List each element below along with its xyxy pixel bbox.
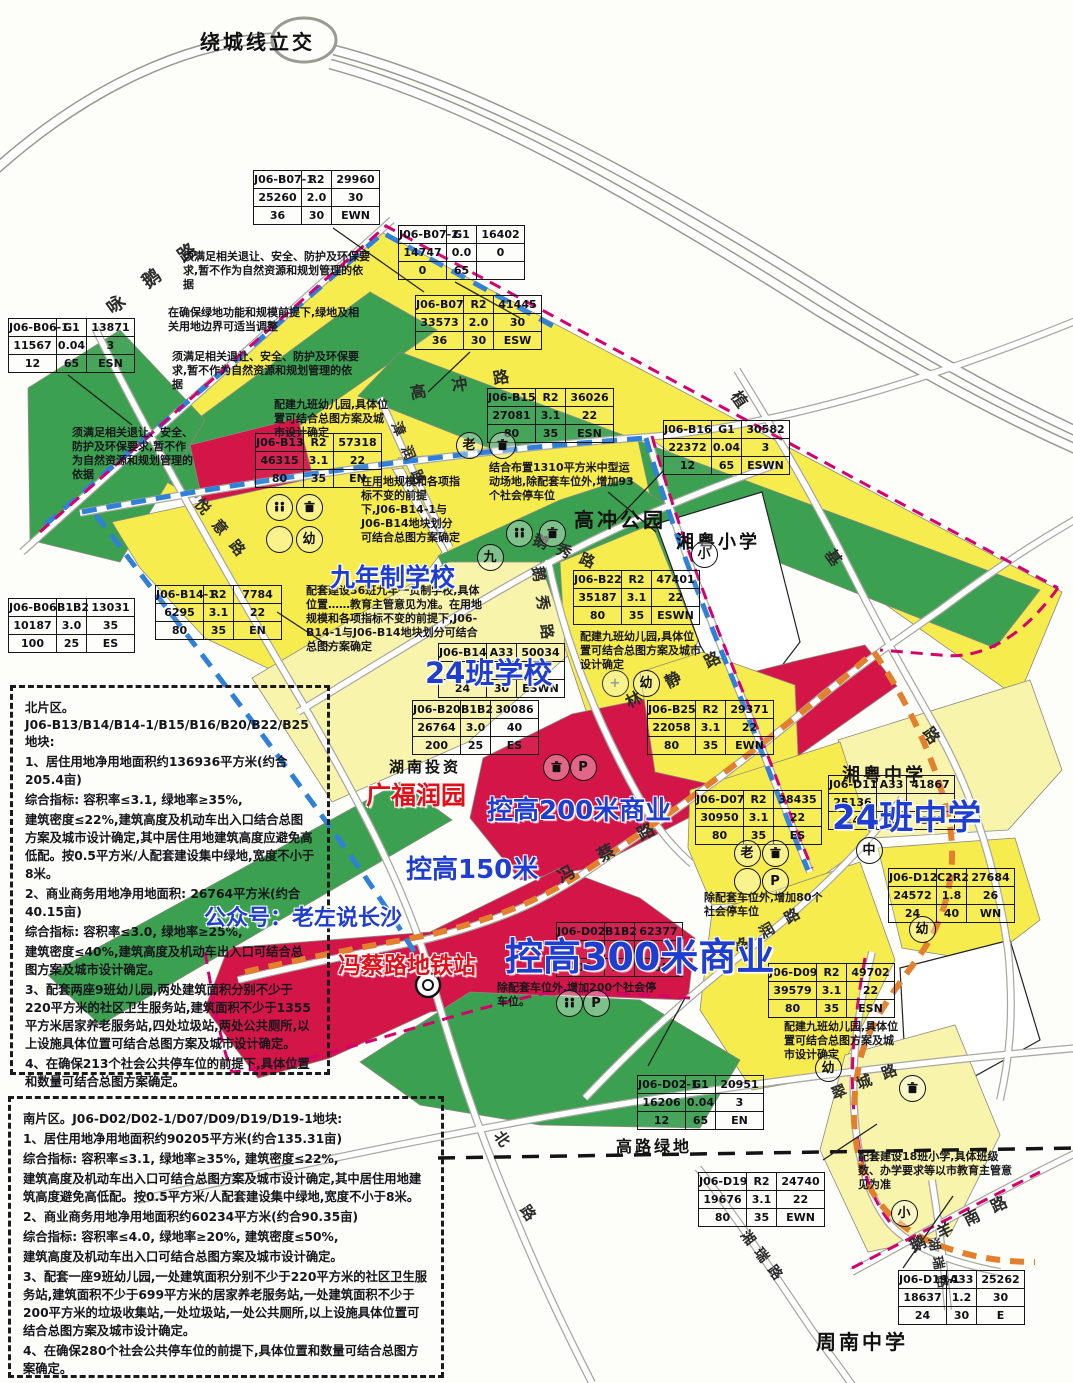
table-cell: 57318 bbox=[333, 433, 382, 452]
annotation-blue-label: 控高300米商业 bbox=[505, 926, 774, 981]
table-cell: 22 bbox=[651, 588, 700, 607]
table-cell: J06-B25 bbox=[647, 700, 696, 719]
table-cell: R2 bbox=[746, 1172, 777, 1191]
table-cell: 3.1 bbox=[816, 981, 847, 1000]
table-cell: 35 bbox=[816, 999, 847, 1018]
table-cell: 16206 bbox=[637, 1093, 686, 1112]
area-label: 湘粤小学 bbox=[676, 528, 760, 554]
facility-icon-中: 中 bbox=[856, 837, 883, 864]
table-cell: J06-D19-1 bbox=[898, 1270, 947, 1289]
table-cell: 0.04 bbox=[711, 438, 742, 457]
table-cell: J06-D12 bbox=[888, 868, 937, 887]
table-cell: 30 bbox=[493, 313, 542, 332]
parcel-table-J06-D19: J06-D19R224740196763.1228035EWN bbox=[698, 1172, 824, 1226]
table-cell: J06-B20 bbox=[412, 700, 461, 719]
table-cell: 27081 bbox=[487, 406, 536, 425]
parcel-table-J06-B06-1: J06-B06-1G113871115670.0431265ESN bbox=[8, 318, 134, 372]
table-cell: 3.1 bbox=[746, 1190, 777, 1209]
table-cell: 3.1 bbox=[203, 603, 234, 622]
table-cell: 22372 bbox=[663, 438, 712, 457]
table-cell: R2 bbox=[301, 170, 332, 189]
zone-note-paragraph: 建筑密度≤22%,建筑高度及机动车出入口结合总图方案及城市设计确定,其中居住用地… bbox=[25, 810, 315, 882]
table-cell: J06-B16 bbox=[663, 420, 712, 439]
table-cell: 80 bbox=[573, 606, 622, 625]
table-cell: 12 bbox=[637, 1111, 686, 1130]
table-cell: 25 bbox=[56, 634, 87, 653]
table-cell bbox=[476, 261, 525, 280]
annotation-blue-label: 24班中学 bbox=[832, 790, 981, 839]
table-cell: 100 bbox=[8, 634, 57, 653]
table-cell: R2 bbox=[463, 295, 494, 314]
trash-station-icon bbox=[539, 520, 566, 547]
facility-icon-幼: 幼 bbox=[296, 526, 323, 553]
table-cell: 1.2 bbox=[946, 1288, 977, 1307]
parcel-table-J06-D07: J06-D07R238435309503.1228035ES bbox=[695, 790, 821, 844]
table-cell: 47401 bbox=[651, 570, 700, 589]
parcel-table-J06-B07: J06-B07R241445335732.0303630ESW bbox=[415, 295, 541, 349]
trash-station-icon bbox=[762, 840, 789, 867]
zone-note-paragraph: 4、在确保213个社会公共停车位的前提下,具体位置和数量可结合总图方案确定。 bbox=[25, 1054, 315, 1090]
table-cell: 35 bbox=[621, 606, 652, 625]
table-cell: 200 bbox=[412, 736, 461, 755]
table-cell: 65 bbox=[685, 1111, 716, 1130]
facility-icon-老: 老 bbox=[734, 840, 761, 867]
planning-note: 配建九班幼儿园,具体位置可结合总图方案及城市设计确定 bbox=[784, 1020, 902, 1062]
table-cell: EWN bbox=[776, 1208, 825, 1227]
table-cell: 12 bbox=[663, 456, 712, 475]
table-cell: 6295 bbox=[155, 603, 204, 622]
table-cell: 30 bbox=[331, 188, 380, 207]
table-cell: ESW bbox=[493, 331, 542, 350]
table-cell: 36 bbox=[415, 331, 464, 350]
facility-icon-老: 老 bbox=[456, 432, 483, 459]
table-cell: J06-B07 bbox=[415, 295, 464, 314]
planning-note: 须满足相关退让、安全、防护及环保要求,暂不作为自然资源和规划管理的依据 bbox=[172, 350, 360, 392]
table-cell: 0 bbox=[398, 261, 447, 280]
zone-note-paragraph: 北片区。 bbox=[25, 698, 315, 716]
table-cell: 24740 bbox=[776, 1172, 825, 1191]
parcel-table-J06-D09: J06-D09R249702395793.1228035ESN bbox=[768, 963, 894, 1017]
facility-circle-icon bbox=[266, 526, 293, 553]
table-cell: 24 bbox=[898, 1306, 947, 1325]
table-cell: J06-D07 bbox=[695, 790, 744, 809]
table-cell: R2 bbox=[203, 585, 234, 604]
zone-note-paragraph: 综合指标: 容积率≤3.1, 绿地率≥35%, bbox=[25, 790, 315, 808]
table-cell: A33 bbox=[946, 1270, 977, 1289]
facility-icon-幼: 幼 bbox=[815, 1055, 842, 1082]
zone-note-paragraph: 建筑高度及机动车出入口可结合总图方案及城市设计确定,其中居住用地建筑高度避免高低… bbox=[23, 1169, 429, 1205]
table-cell: J06-B07-2 bbox=[398, 225, 447, 244]
table-cell: ESWN bbox=[651, 606, 700, 625]
table-cell: J06-D09 bbox=[768, 963, 817, 982]
table-cell: 80 bbox=[255, 469, 304, 488]
table-cell: R2 bbox=[695, 700, 726, 719]
area-label: 高冲公园 bbox=[574, 504, 666, 533]
table-cell: J06-D19 bbox=[698, 1172, 747, 1191]
zone-note-paragraph: 3、配套两座9班幼儿园,两处建筑面积分别不少于220平方米的社区卫生服务站,建筑… bbox=[25, 980, 315, 1052]
table-cell: 26764 bbox=[412, 718, 461, 737]
table-cell: ESN bbox=[846, 999, 895, 1018]
table-cell: G1 bbox=[685, 1075, 716, 1094]
table-cell: 80 bbox=[768, 999, 817, 1018]
table-cell: ESN bbox=[86, 354, 135, 373]
table-cell: E bbox=[976, 1306, 1025, 1325]
table-cell: 80 bbox=[698, 1208, 747, 1227]
zone-note-paragraph: 建筑密度≤40%,建筑高度及机动车出入口可结合总图方案及城市设计确定。 bbox=[25, 942, 315, 978]
table-cell: 35 bbox=[535, 424, 566, 443]
table-cell: 39579 bbox=[768, 981, 817, 1000]
table-cell: 25 bbox=[460, 736, 491, 755]
trash-station-icon bbox=[489, 432, 516, 459]
table-cell: 3.0 bbox=[56, 616, 87, 635]
table-cell: 25260 bbox=[253, 188, 302, 207]
table-cell: G1 bbox=[56, 318, 87, 337]
trash-station-icon bbox=[296, 494, 323, 521]
table-cell: 2.0 bbox=[301, 188, 332, 207]
table-cell: B1B2 bbox=[460, 700, 491, 719]
annotation-blue-label: 公众号：老左说长沙 bbox=[204, 900, 402, 932]
table-cell: 29371 bbox=[725, 700, 774, 719]
table-cell: 22 bbox=[725, 718, 774, 737]
north-zone-notes: 北片区。J06-B13/B14/B14-1/B15/B16/B20/B22/B2… bbox=[10, 685, 330, 1075]
table-cell: 38435 bbox=[773, 790, 822, 809]
toilet-icon bbox=[506, 520, 533, 547]
table-cell: 2.0 bbox=[463, 313, 494, 332]
table-cell: 12 bbox=[8, 354, 57, 373]
table-cell: EWN bbox=[725, 736, 774, 755]
table-cell: 30 bbox=[976, 1288, 1025, 1307]
area-label: 周南中学 bbox=[816, 1326, 908, 1355]
table-cell: 11567 bbox=[8, 336, 57, 355]
parking-icon: P bbox=[583, 990, 610, 1017]
zone-note-paragraph: J06-B13/B14/B14-1/B15/B16/B20/B22/B25地块: bbox=[25, 718, 315, 750]
table-cell: 30582 bbox=[741, 420, 790, 439]
parcel-table-J06-B16: J06-B16G130582223720.0431265ESWN bbox=[663, 420, 789, 474]
facility-circle-icon bbox=[734, 868, 761, 895]
parcel-table-J06-B13: J06-B13R257318463153.1228035EN bbox=[255, 433, 381, 487]
table-cell: 18637 bbox=[898, 1288, 947, 1307]
table-cell: 22 bbox=[233, 603, 282, 622]
table-cell: 3.1 bbox=[621, 588, 652, 607]
annotation-blue-label: 九年制学校 bbox=[330, 558, 455, 594]
table-cell: 80 bbox=[695, 826, 744, 845]
zone-note-paragraph: 1、居住用地净用地面积约90205平方米(约合135.31亩) bbox=[23, 1129, 429, 1147]
annotation-blue-label: 控高150米 bbox=[406, 849, 538, 886]
table-cell: C2R2 bbox=[936, 868, 967, 887]
table-cell: B1B2 bbox=[56, 598, 87, 617]
table-cell: WN bbox=[966, 904, 1015, 923]
table-cell: G1 bbox=[446, 225, 477, 244]
table-cell: 36026 bbox=[565, 388, 614, 407]
annotation-red-label: 冯蔡路地铁站 bbox=[338, 946, 476, 980]
table-cell: 35 bbox=[203, 621, 234, 640]
table-cell: R2 bbox=[621, 570, 652, 589]
parcel-table-J06-B14-1: J06-B14-1R2778462953.1228035EN bbox=[155, 585, 281, 639]
parcel-table-J06-D02-1: J06-D02-1G120951162060.0431265EN bbox=[637, 1075, 763, 1129]
table-cell: 49702 bbox=[846, 963, 895, 982]
table-cell: 36 bbox=[253, 206, 302, 225]
table-cell: 0.04 bbox=[685, 1093, 716, 1112]
facility-icon-九: 九 bbox=[477, 544, 504, 571]
table-cell: 3 bbox=[86, 336, 135, 355]
table-cell: 65 bbox=[711, 456, 742, 475]
parcel-table-J06-D12: J06-D12C2R227684245721.8262440WN bbox=[888, 868, 1014, 922]
table-cell: EN bbox=[333, 469, 382, 488]
table-cell: 7784 bbox=[233, 585, 282, 604]
table-cell: 27684 bbox=[966, 868, 1015, 887]
zone-note-paragraph: 2、商业商务用地净用地面积约60234平方米(约合90.35亩) bbox=[23, 1207, 429, 1225]
table-cell: 3.0 bbox=[460, 718, 491, 737]
parcel-table-J06-D19-1: J06-D19-1A3325262186371.2302430E bbox=[898, 1270, 1024, 1324]
table-cell: 35187 bbox=[573, 588, 622, 607]
table-cell: 26 bbox=[966, 886, 1015, 905]
area-label: 绕城线立交 bbox=[200, 26, 315, 55]
planning-note: 除配套车位外,增加80个社会停车位 bbox=[704, 891, 830, 919]
table-cell: 20951 bbox=[715, 1075, 764, 1094]
trash-station-icon bbox=[543, 754, 570, 781]
zone-note-paragraph: 建筑高度及机动车出入口可结合总图方案及城市设计确定。 bbox=[23, 1247, 429, 1265]
table-cell: 0.04 bbox=[56, 336, 87, 355]
annotation-blue-label: 控高200米商业 bbox=[487, 790, 671, 827]
south-zone-notes: 南片区。J06-D02/D02-1/D07/D09/D19/D19-1地块:1、… bbox=[8, 1096, 444, 1378]
parcel-table-J06-B07-2: J06-B07-2G116402147470.00065 bbox=[398, 225, 524, 279]
annotation-blue-label: 24班学校 bbox=[425, 650, 552, 692]
table-cell: 24572 bbox=[888, 886, 937, 905]
table-cell: 35 bbox=[86, 616, 135, 635]
zone-note-paragraph: 综合指标: 容积率≤3.1, 绿地率≥35%, 建筑密度≤22%, bbox=[23, 1149, 429, 1167]
table-cell: 22058 bbox=[647, 718, 696, 737]
table-cell: J06-B07-1 bbox=[253, 170, 302, 189]
table-cell: J06-B22 bbox=[573, 570, 622, 589]
table-cell: 13871 bbox=[86, 318, 135, 337]
planning-note: 须满足相关退让、安全、防护及环保要求,暂不作为自然资源和规划管理的依据 bbox=[183, 250, 373, 292]
table-cell: 65 bbox=[446, 261, 477, 280]
table-cell: J06-D02-1 bbox=[637, 1075, 686, 1094]
table-cell: 30950 bbox=[695, 808, 744, 827]
table-cell: EWN bbox=[331, 206, 380, 225]
zone-note-paragraph: 南片区。J06-D02/D02-1/D07/D09/D19/D19-1地块: bbox=[23, 1109, 429, 1127]
table-cell: 22 bbox=[333, 451, 382, 470]
table-cell: 40 bbox=[936, 904, 967, 923]
table-cell: R2 bbox=[816, 963, 847, 982]
parcel-table-J06-B25: J06-B25R229371220583.1228035EWN bbox=[647, 700, 773, 754]
table-cell: ESN bbox=[565, 424, 614, 443]
toilet-icon bbox=[266, 494, 293, 521]
facility-icon-小: 小 bbox=[691, 541, 718, 568]
trash-station-icon bbox=[899, 1075, 926, 1102]
table-cell: 29960 bbox=[331, 170, 380, 189]
parking-icon: P bbox=[762, 868, 789, 895]
table-cell: 30 bbox=[463, 331, 494, 350]
toilet-icon bbox=[556, 990, 583, 1017]
table-cell: J06-B13 bbox=[255, 433, 304, 452]
table-cell: 80 bbox=[155, 621, 204, 640]
table-cell: 80 bbox=[647, 736, 696, 755]
facility-icon-幼: 幼 bbox=[909, 916, 936, 943]
table-cell: 1.8 bbox=[936, 886, 967, 905]
table-cell: 46315 bbox=[255, 451, 304, 470]
table-cell: R2 bbox=[535, 388, 566, 407]
table-cell: 0.0 bbox=[446, 243, 477, 262]
table-cell: ESWN bbox=[741, 456, 790, 475]
table-cell: 30086 bbox=[490, 700, 539, 719]
facility-icon-幼: 幼 bbox=[633, 670, 660, 697]
table-cell: 35 bbox=[746, 1208, 777, 1227]
table-cell: 3.1 bbox=[303, 451, 334, 470]
table-cell: 13031 bbox=[86, 598, 135, 617]
parking-icon: P bbox=[570, 754, 597, 781]
planning-note: 配建九班幼儿园,具体位置可结合总图方案及城市设计确定 bbox=[580, 630, 702, 672]
table-cell: ES bbox=[490, 736, 539, 755]
table-cell: 22 bbox=[565, 406, 614, 425]
table-cell: J06-B06 bbox=[8, 598, 57, 617]
table-cell: 22 bbox=[846, 981, 895, 1000]
table-cell: 65 bbox=[56, 354, 87, 373]
table-cell: 16402 bbox=[476, 225, 525, 244]
parcel-table-J06-B22: J06-B22R247401351873.1228035ESWN bbox=[573, 570, 699, 624]
planning-note: 须满足相关退让、安全、防护及环保要求,暂不作为自然资源和规划管理的依据 bbox=[72, 426, 194, 482]
table-cell: 3 bbox=[715, 1093, 764, 1112]
table-cell: 41445 bbox=[493, 295, 542, 314]
table-cell: G1 bbox=[711, 420, 742, 439]
table-cell: 30 bbox=[301, 206, 332, 225]
table-cell: 3.1 bbox=[743, 808, 774, 827]
planning-map: 北片区。J06-B13/B14/B14-1/B15/B16/B20/B22/B2… bbox=[0, 0, 1073, 1383]
table-cell: EN bbox=[715, 1111, 764, 1130]
planning-note: 结合布置1310平方米中型运动场地,除配套车位外,增加93个社会停车位 bbox=[489, 461, 639, 503]
table-cell: 40 bbox=[490, 718, 539, 737]
planning-note: 配套建设18班小学,具体班级数、办学要求等以市教育主管意见为准 bbox=[858, 1150, 1018, 1192]
table-cell: 35 bbox=[303, 469, 334, 488]
table-cell: ES bbox=[86, 634, 135, 653]
area-label: 高路绿地 bbox=[616, 1133, 692, 1157]
parcel-table-J06-B20: J06-B20B1B230086267643.04020025ES bbox=[412, 700, 538, 754]
table-cell: 3.1 bbox=[695, 718, 726, 737]
table-cell: 33573 bbox=[415, 313, 464, 332]
table-cell: 19676 bbox=[698, 1190, 747, 1209]
table-cell: 22 bbox=[776, 1190, 825, 1209]
table-cell: 3 bbox=[741, 438, 790, 457]
clinic-icon: + bbox=[602, 670, 629, 697]
table-cell: 25262 bbox=[976, 1270, 1025, 1289]
table-cell: 3.1 bbox=[535, 406, 566, 425]
facility-icon-小: 小 bbox=[891, 1200, 918, 1227]
table-cell: 14747 bbox=[398, 243, 447, 262]
table-cell: J06-B14-1 bbox=[155, 585, 204, 604]
zone-note-paragraph: 4、在确保280个社会公共停车位的前提下,具体位置和数量可结合总图方案确定。 bbox=[23, 1341, 429, 1377]
table-cell: R2 bbox=[303, 433, 334, 452]
annotation-red-label: 广福润园 bbox=[366, 776, 466, 812]
table-cell: EN bbox=[233, 621, 282, 640]
parcel-table-J06-B06: J06-B06B1B213031101873.03510025ES bbox=[8, 598, 134, 652]
table-cell: R2 bbox=[743, 790, 774, 809]
table-cell: 10187 bbox=[8, 616, 57, 635]
table-cell: 30 bbox=[946, 1306, 977, 1325]
area-label: 湖南投资 bbox=[389, 756, 461, 777]
table-cell: 22 bbox=[773, 808, 822, 827]
zone-note-paragraph: 1、居住用地净用地面积约136936平方米(约合205.4亩) bbox=[25, 752, 315, 788]
zone-note-paragraph: 综合指标: 容积率≤4.0, 绿地率≥20%, 建筑密度≤50%, bbox=[23, 1227, 429, 1245]
parcel-table-J06-B07-1: J06-B07-1R229960252602.0303630EWN bbox=[253, 170, 379, 224]
zone-note-paragraph: 3、配套一座9班幼儿园,一处建筑面积分别不少于220平方米的社区卫生服务站,建筑… bbox=[23, 1267, 429, 1339]
table-cell: 0 bbox=[476, 243, 525, 262]
table-cell: J06-B06-1 bbox=[8, 318, 57, 337]
planning-note: 在确保绿地功能和规模前提下,绿地及相关用地边界可适当调整 bbox=[168, 306, 363, 334]
table-cell: 35 bbox=[695, 736, 726, 755]
table-cell: J06-B15 bbox=[487, 388, 536, 407]
